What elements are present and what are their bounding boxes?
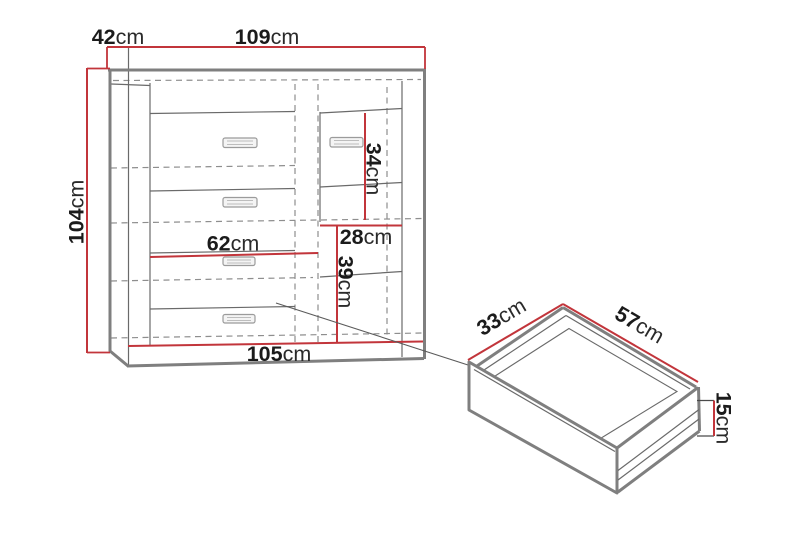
dimension-diagram: 42cm 109cm 104cm 34cm 28cm 39cm 62cm 105…	[0, 0, 800, 533]
right-corner-edge	[699, 387, 700, 431]
dim-label-side-28: 28cm	[340, 225, 393, 249]
dim-label-drawer-height-15: 15cm	[712, 392, 736, 445]
top-left-inner-edge	[111, 84, 150, 86]
dashed-shelf-3	[111, 278, 313, 282]
cabinet-front-view	[87, 47, 426, 366]
drawer-2-top	[150, 189, 295, 192]
cabinet-dashed-lines	[111, 80, 423, 345]
column-mid-shelf	[320, 183, 402, 188]
drawer-handle-4	[223, 315, 255, 324]
dim-label-base-105: 105cm	[247, 342, 312, 366]
drawer-1-top	[150, 112, 295, 114]
column-top-shelf	[320, 109, 402, 114]
dashed-shelf-2	[111, 219, 423, 224]
dashed-top-inner	[113, 80, 421, 81]
drawer-handle-2	[223, 198, 257, 208]
drawer-handle-3	[223, 257, 255, 266]
drawer-3d-view	[468, 304, 714, 493]
diagram-canvas: 42cm 109cm 104cm 34cm 28cm 39cm 62cm 105…	[0, 0, 800, 533]
drawer-4-top	[150, 307, 295, 310]
dashed-shelf-1	[111, 166, 295, 169]
door-handle	[330, 138, 363, 148]
dim-label-width-109: 109cm	[235, 25, 300, 49]
dim-label-drawer-depth-33: 33cm	[473, 293, 530, 340]
drawer-handle-1	[223, 138, 257, 148]
dim-label-door-34: 34cm	[362, 143, 386, 196]
dim-label-side-lower-39: 39cm	[334, 256, 358, 309]
column-lower-shelf	[320, 272, 402, 278]
slide-rail-1	[618, 419, 699, 480]
cabinet-outline	[108, 70, 426, 366]
dim-label-depth-42: 42cm	[92, 25, 145, 49]
dim-line-top-ticks	[107, 47, 425, 69]
dim-line-height-ticks	[87, 69, 110, 353]
cabinet-left-edge	[110, 70, 128, 366]
dim-label-drawer-62: 62cm	[207, 232, 260, 256]
dim-label-height-104: 104cm	[65, 180, 89, 245]
